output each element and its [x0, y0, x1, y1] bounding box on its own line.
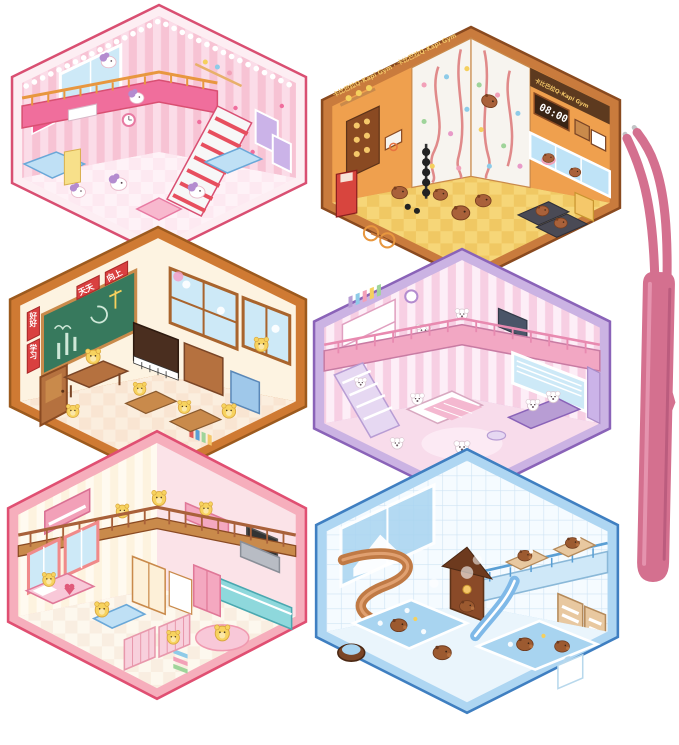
room-pony-bedroom: [8, 2, 310, 258]
steam: [461, 566, 473, 579]
blossom: [173, 271, 183, 281]
lantern: [463, 585, 471, 593]
bath-barrel: [338, 644, 365, 661]
plaque-text: 好好: [29, 310, 38, 328]
plaque-text: 学习: [29, 343, 38, 361]
tweezers-body-group: [616, 127, 679, 582]
room-bear-house: [4, 428, 310, 702]
wall-clock: [405, 290, 417, 302]
rubber-duck: [413, 617, 417, 621]
steam: [473, 555, 482, 564]
steam: [429, 578, 438, 587]
side-table: [487, 431, 505, 440]
rubber-duck: [541, 634, 545, 638]
curtain: [588, 367, 600, 423]
room-capybara-gym: 卡比巴拉Q-Kapi Gym · 卡比巴拉Q-Kapi Gym 卡比: [318, 24, 624, 284]
water-cooler: [64, 149, 80, 185]
climbing-wall: [412, 38, 530, 187]
tweezers: [614, 124, 679, 590]
room-capybara-bathhouse: [312, 446, 622, 716]
product-image: 卡比巴拉Q-Kapi Gym · 卡比巴拉Q-Kapi Gym 卡比: [0, 0, 679, 745]
